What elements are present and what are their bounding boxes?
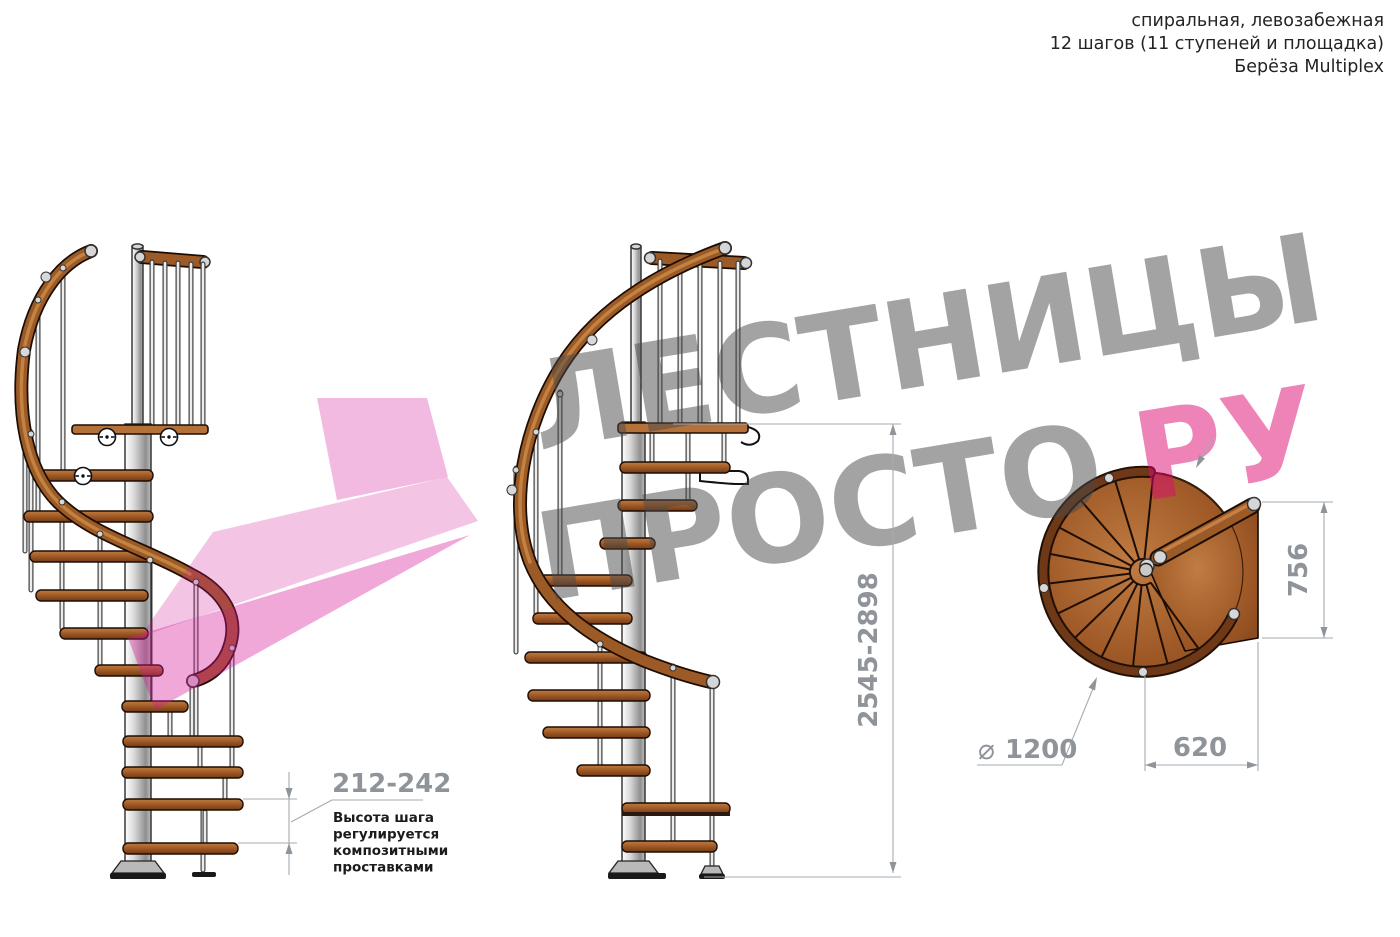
staircase-drawing-sheet: ЛЕСТНИЦЫ ПРОСТОРУ 212-242 Высота шагарег… [0, 0, 1400, 937]
railing-balusters-left [152, 262, 203, 428]
dim-landing-depth-value: 756 [1284, 543, 1314, 597]
title-block: спиральная, левозабежная 12 шагов (11 ст… [1050, 10, 1384, 79]
dim-diameter-value: 1200 [1005, 735, 1077, 765]
diameter-symbol: ⌀ [978, 733, 995, 766]
newel-pole [132, 246, 143, 430]
dim-total-height-value: 2545-2898 [854, 572, 884, 728]
dim-step-height-value: 212-242 [332, 769, 451, 799]
watermark-ru: РУ [1124, 360, 1328, 530]
highlight-ribbon [128, 398, 478, 710]
dim-step-height-note: Высота шагарегулируетсякомпозитнымипрост… [333, 810, 448, 876]
technical-drawing: ЛЕСТНИЦЫ ПРОСТОРУ 212-242 Высота шагарег… [0, 0, 1400, 937]
title-line-steps: 12 шагов (11 ступеней и площадка) [1050, 33, 1384, 56]
plan-center-column [1140, 564, 1153, 577]
title-line-material: Берёза Multiplex [1050, 56, 1384, 79]
dim-landing-width-value: 620 [1173, 733, 1227, 763]
dim-step-height: 212-242 Высота шагарегулируетсякомпозитн… [238, 769, 451, 876]
title-line-type: спиральная, левозабежная [1050, 10, 1384, 33]
dim-landing-depth: 756 [1262, 502, 1333, 638]
dim-diameter: ⌀ 1200 [977, 677, 1097, 766]
